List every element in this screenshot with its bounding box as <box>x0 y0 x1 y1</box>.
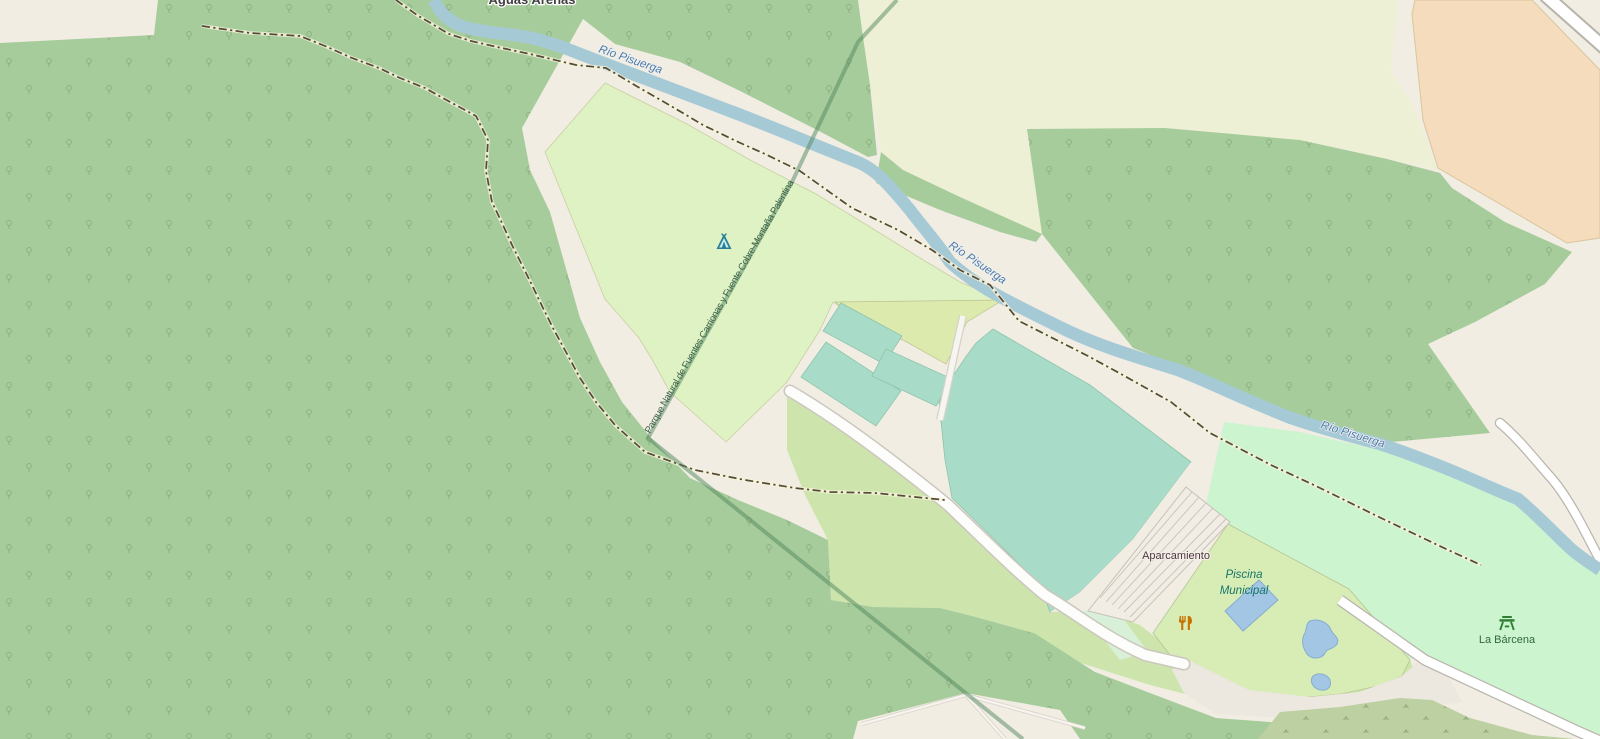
svg-text:Aparcamiento: Aparcamiento <box>1142 550 1210 562</box>
svg-text:Municipal: Municipal <box>1220 585 1269 597</box>
svg-text:Aguas Arenas: Aguas Arenas <box>489 0 576 7</box>
svg-text:La Bárcena: La Bárcena <box>1479 634 1536 646</box>
svg-text:Piscina: Piscina <box>1225 569 1262 581</box>
